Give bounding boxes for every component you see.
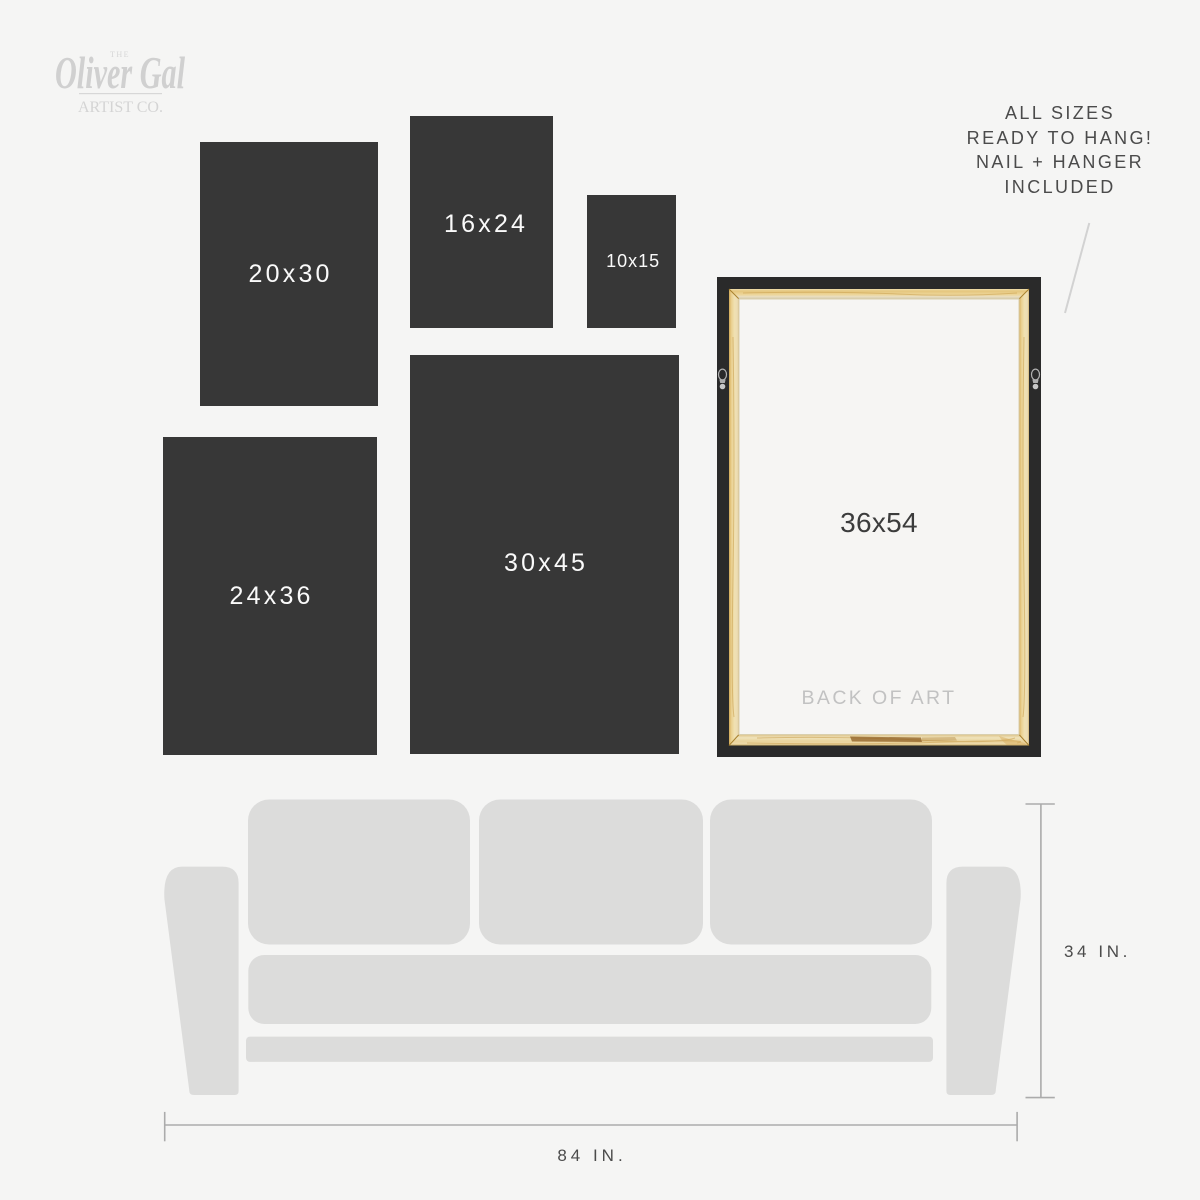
svg-text:ARTIST CO.: ARTIST CO. [78,99,163,116]
svg-text:Oliver Gal: Oliver Gal [55,47,185,98]
